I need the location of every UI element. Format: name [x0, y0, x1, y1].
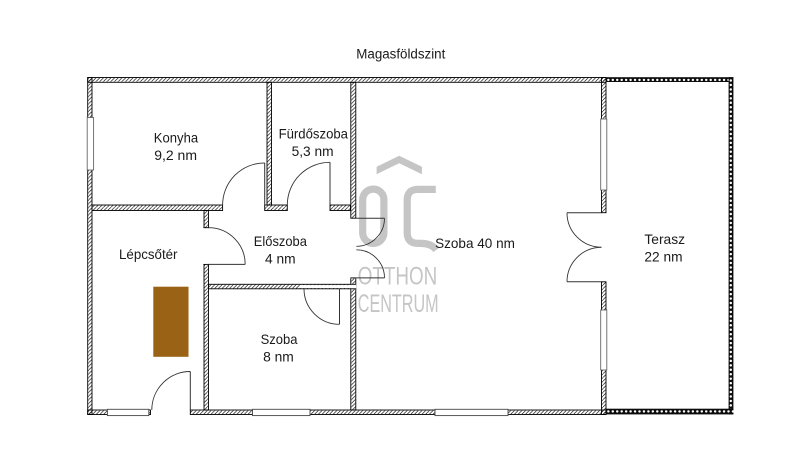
svg-text:22 nm: 22 nm [644, 248, 682, 264]
svg-text:9,2 nm: 9,2 nm [154, 147, 197, 163]
svg-text:8 nm: 8 nm [263, 348, 294, 364]
svg-text:Konyha: Konyha [154, 129, 198, 145]
svg-text:Szoba: Szoba [261, 331, 298, 347]
svg-text:Magasföldszint: Magasföldszint [356, 47, 445, 63]
svg-text:5,3 nm: 5,3 nm [292, 143, 334, 159]
svg-text:CENTRUM: CENTRUM [358, 290, 439, 318]
svg-text:Előszoba: Előszoba [254, 233, 307, 249]
svg-text:Szoba 40 nm: Szoba 40 nm [435, 235, 515, 251]
svg-text:Fürdőszoba: Fürdőszoba [279, 126, 349, 142]
svg-text:OTTHON: OTTHON [358, 263, 438, 291]
svg-text:4 nm: 4 nm [265, 251, 296, 267]
svg-text:Lépcsőtér: Lépcsőtér [119, 246, 178, 262]
svg-text:Terasz: Terasz [644, 231, 685, 247]
